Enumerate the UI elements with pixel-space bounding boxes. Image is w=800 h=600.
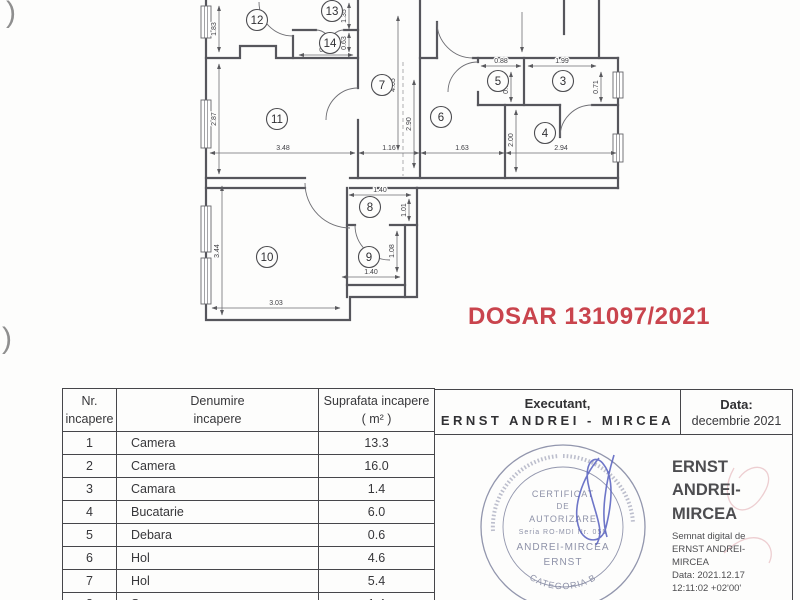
room-number-8: 8 [367, 202, 373, 214]
dimension-label: 0.71 [593, 80, 600, 94]
cell-denumire: Camara [117, 478, 319, 501]
room-number-11: 11 [271, 114, 283, 126]
scanned-cadastral-document: ) ) [0, 0, 800, 600]
cell-nr: 6 [63, 547, 117, 570]
header-line: Nr. [82, 394, 98, 408]
dimension-label: 2.87 [211, 112, 218, 126]
signature-detail-line: ERNST ANDREI- [672, 544, 794, 557]
dimension-label: 1.40 [364, 269, 378, 276]
data-cell: Data: decembrie 2021 [681, 390, 792, 434]
room-number-13: 13 [326, 6, 339, 18]
cell-suprafata: 5.4 [319, 570, 435, 593]
cell-nr: 3 [63, 478, 117, 501]
dimension-label: 0.88 [494, 58, 508, 65]
header-denumire: Denumire incapere [117, 389, 319, 432]
executant-cell: Executant, ERNST ANDREI - MIRCEA [435, 390, 681, 434]
signature-detail-line: Data: 2021.12.17 [672, 570, 794, 583]
executant-header-row: Executant, ERNST ANDREI - MIRCEA Data: d… [435, 390, 792, 435]
cell-denumire: Sas [117, 593, 319, 600]
cell-nr: 7 [63, 570, 117, 593]
room-number-12: 12 [251, 15, 264, 27]
table-row: 6Hol4.6 [63, 547, 435, 570]
cell-nr: 1 [63, 432, 117, 455]
room-number-7: 7 [379, 80, 385, 92]
header-nr-incapere: Nr. incapere [63, 389, 117, 432]
cell-denumire: Debara [117, 524, 319, 547]
digital-signature-block: ERNST ANDREI- MIRCEA Semnat digital de E… [672, 456, 794, 595]
rooms-table: Nr. incapere Denumire incapere Suprafata… [62, 388, 435, 600]
room-number-6: 6 [438, 112, 444, 124]
header-line: incapere [66, 412, 114, 426]
dimension-label: 2.94 [554, 145, 568, 152]
stamp-line-name: ANDREI-MIRCEA [516, 542, 609, 553]
dimension-label: 1.63 [455, 145, 469, 152]
header-line: Suprafata incapere [324, 394, 430, 408]
dimension-label: 3.48 [276, 145, 290, 152]
table-row: 7Hol5.4 [63, 570, 435, 593]
cell-suprafata: 16.0 [319, 455, 435, 478]
signature-name-line: ERNST [672, 456, 794, 479]
svg-text:CATEGORIA B: CATEGORIA B [528, 572, 598, 591]
room-number-3: 3 [560, 76, 566, 88]
dimension-lines: 1.832.873.481.161.632.944.652.902.000.88… [210, 3, 616, 315]
cell-suprafata: 1.4 [319, 593, 435, 600]
room-number-4: 4 [542, 128, 549, 140]
cell-denumire: Bucatarie [117, 501, 319, 524]
dimension-label: 3.03 [269, 300, 283, 307]
table-row: 8Sas1.4 [63, 593, 435, 600]
dimension-label: 1.08 [389, 244, 396, 258]
stamp-line-ernst: ERNST [544, 557, 583, 568]
dimension-label: 3.44 [214, 244, 221, 258]
cell-suprafata: 6.0 [319, 501, 435, 524]
cell-nr: 4 [63, 501, 117, 524]
cell-denumire: Hol [117, 547, 319, 570]
walls [206, 0, 618, 320]
cell-denumire: Camera [117, 455, 319, 478]
signature-name-line: ANDREI- [672, 479, 794, 502]
room-number-9: 9 [366, 252, 372, 264]
data-label: Data: [720, 397, 753, 412]
dimension-label: 0.63 [341, 36, 348, 50]
stamp-line-autorizare: AUTORIZARE [529, 514, 597, 524]
stamp-line-de: DE [556, 502, 569, 511]
executant-name: ERNST ANDREI - MIRCEA [441, 413, 674, 428]
cell-nr: 2 [63, 455, 117, 478]
room-number-circles: 12131475311648910 [247, 1, 574, 268]
stamp-line-seria: Seria RO-MDI Nr. 055 [519, 529, 607, 536]
data-value: decembrie 2021 [692, 414, 782, 428]
dimension-label: 2.00 [508, 133, 515, 147]
dosar-number: DOSAR 131097/2021 [468, 303, 710, 331]
dimension-label: 1.40 [373, 187, 387, 194]
room-number-10: 10 [261, 252, 274, 264]
cell-nr: 5 [63, 524, 117, 547]
executant-label: Executant, [525, 396, 591, 411]
dimension-label: 2.90 [406, 117, 413, 131]
rooms-table-header-row: Nr. incapere Denumire incapere Suprafata… [63, 389, 435, 432]
room-number-14: 14 [324, 38, 337, 50]
dimension-label: 1.01 [401, 203, 408, 217]
cell-denumire: Camera [117, 432, 319, 455]
signature-detail-line: 12:11:02 +02'00' [672, 583, 794, 596]
table-row: 4Bucatarie6.0 [63, 501, 435, 524]
dimension-label: 1.99 [555, 58, 569, 65]
cell-suprafata: 1.4 [319, 478, 435, 501]
stamp-categoria-arc: CATEGORIA B [528, 572, 598, 591]
header-line: incapere [194, 412, 242, 426]
cell-suprafata: 0.6 [319, 524, 435, 547]
signature-details: Semnat digital de ERNST ANDREI- MIRCEA D… [672, 531, 794, 595]
header-suprafata: Suprafata incapere ( m² ) [319, 389, 435, 432]
signature-detail-line: Semnat digital de [672, 531, 794, 544]
table-row: 3Camara1.4 [63, 478, 435, 501]
cell-suprafata: 13.3 [319, 432, 435, 455]
signature-name-line: MIRCEA [672, 503, 794, 526]
room-number-5: 5 [495, 76, 501, 88]
table-row: 2Camera16.0 [63, 455, 435, 478]
header-line: Denumire [190, 394, 244, 408]
table-row: 5Debara0.6 [63, 524, 435, 547]
cell-denumire: Hol [117, 570, 319, 593]
header-line: ( m² ) [362, 412, 392, 426]
stamp-line-certificat: CERTIFICAT [532, 489, 594, 499]
signature-detail-line: MIRCEA [672, 557, 794, 570]
dimension-label: 1.83 [211, 22, 218, 36]
dimension-label: 1.16 [382, 145, 396, 152]
table-row: 1Camera13.3 [63, 432, 435, 455]
cell-nr: 8 [63, 593, 117, 600]
cell-suprafata: 4.6 [319, 547, 435, 570]
